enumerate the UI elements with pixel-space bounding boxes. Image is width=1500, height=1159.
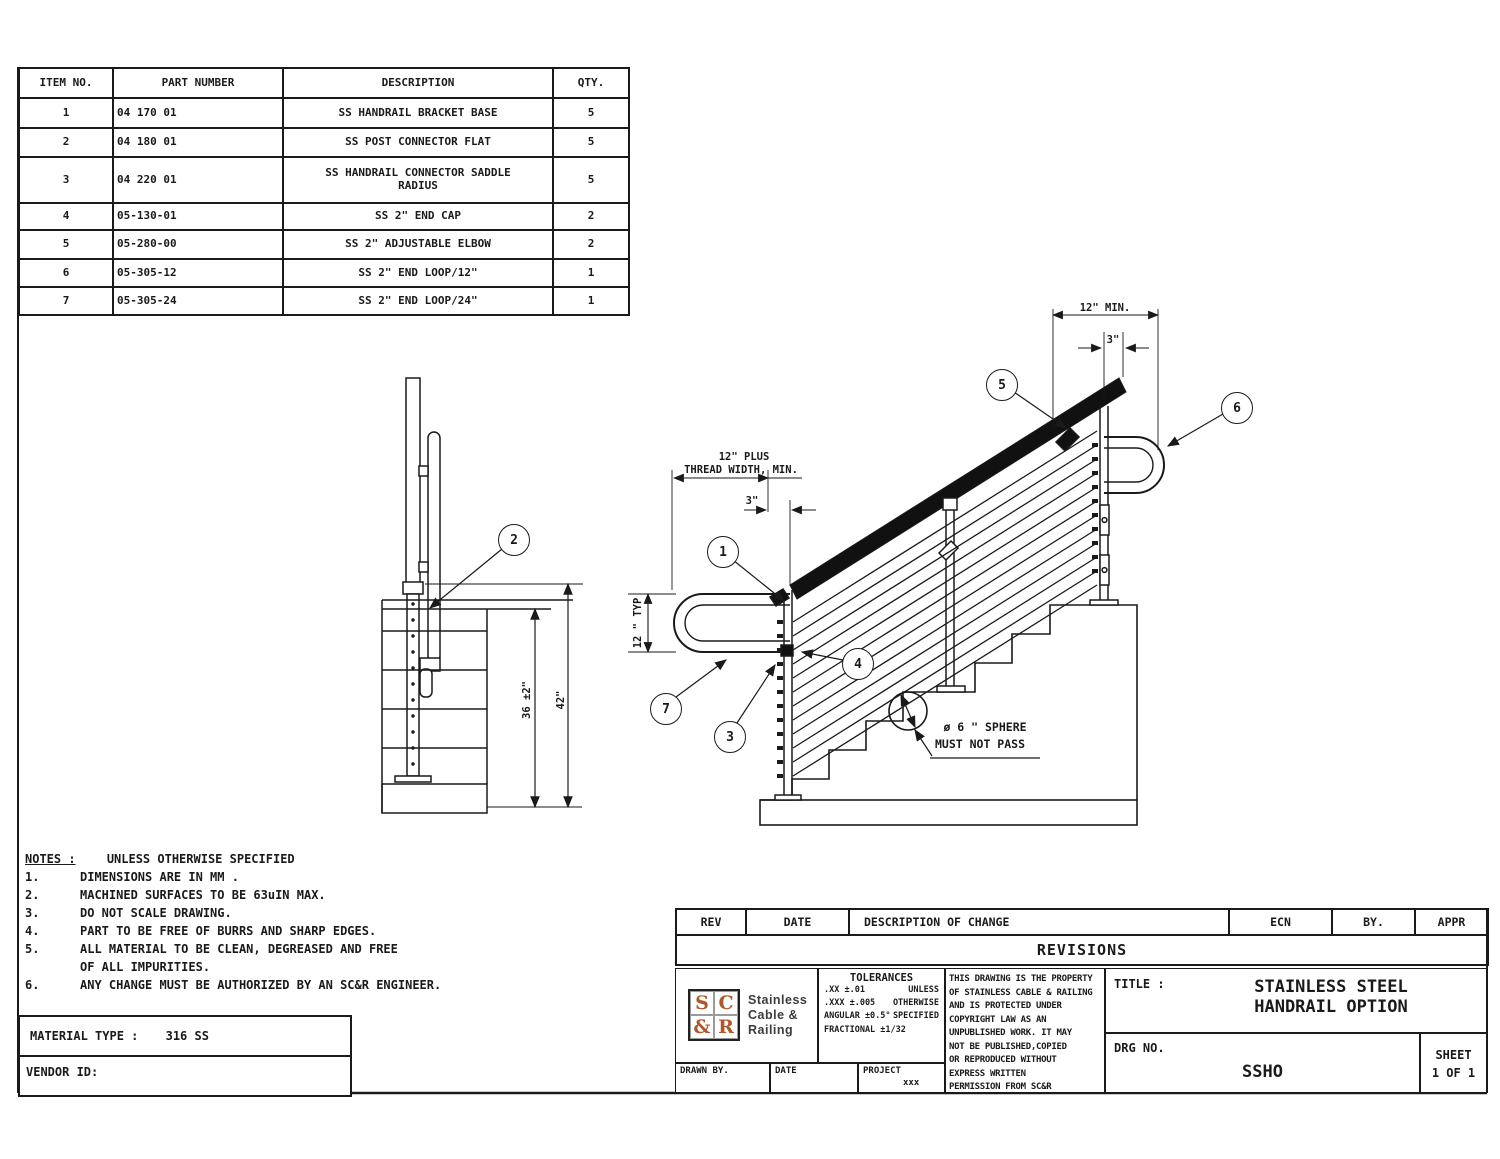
by-col: BY.	[1332, 909, 1415, 935]
cell-desc: SS POST CONNECTOR FLAT	[283, 128, 553, 157]
cell-item: 1	[19, 98, 113, 128]
tolerances-cell: TOLERANCES .XX ±.01UNLESS .XXX ±.005OTHE…	[818, 968, 945, 1063]
balloon-5: 5	[986, 369, 1018, 401]
vendor-id-box: VENDOR ID:	[18, 1055, 352, 1097]
dim-42: 42"	[555, 691, 567, 710]
tolerance-value: .XXX ±.005	[824, 997, 875, 1010]
cell-qty: 5	[553, 157, 629, 203]
description-col: DESCRIPTION OF CHANGE	[849, 909, 1229, 935]
sheet-value: 1 OF 1	[1421, 1066, 1486, 1080]
tolerance-note: UNLESS	[908, 984, 939, 997]
dim-36: 36 ±2"	[521, 681, 533, 719]
copyright-line: THIS DRAWING IS THE PROPERTY	[949, 973, 1101, 987]
dim-12-min: 12" MIN.	[1080, 302, 1131, 314]
cell-qty: 1	[553, 259, 629, 287]
table-row: 7 05-305-24 SS 2" END LOOP/24" 1	[19, 287, 629, 315]
copyright-line: AND IS PROTECTED UNDER	[949, 1000, 1101, 1014]
copyright-line: COPYRIGHT LAW AS AN	[949, 1014, 1101, 1028]
material-type-value: 316 SS	[146, 1029, 209, 1043]
logo-letter: &	[690, 1015, 714, 1039]
sheet-cell: SHEET 1 OF 1	[1420, 1033, 1487, 1093]
dim-12-plus-line2: THREAD WIDTH, MIN.	[684, 464, 798, 476]
cell-qty: 5	[553, 98, 629, 128]
logo-text: Stainless Cable & Railing	[748, 993, 807, 1037]
table-row: 1 04 170 01 SS HANDRAIL BRACKET BASE 5	[19, 98, 629, 128]
tolerances-title: TOLERANCES	[824, 972, 939, 984]
table-row: 3 04 220 01 SS HANDRAIL CONNECTOR SADDLE…	[19, 157, 629, 203]
balloon-7: 7	[650, 693, 682, 725]
dim-3-top: 3"	[1107, 334, 1120, 346]
rev-col: REV	[676, 909, 746, 935]
sphere-note-line2: MUST NOT PASS	[935, 737, 1025, 751]
balloon-4: 4	[842, 648, 874, 680]
revisions-table: REV DATE DESCRIPTION OF CHANGE ECN BY. A…	[675, 908, 1489, 966]
drg-no-label: DRG NO.	[1114, 1041, 1165, 1055]
drawing-sheet: ITEM NO. PART NUMBER DESCRIPTION QTY. 1 …	[0, 0, 1500, 1159]
cell-desc: SS HANDRAIL CONNECTOR SADDLE RADIUS	[283, 157, 553, 203]
cell-item: 5	[19, 230, 113, 259]
logo-cell: S C & R Stainless Cable & Railing	[675, 968, 818, 1063]
revisions-title-row: REVISIONS	[676, 935, 1488, 965]
copyright-line: PERMISSION FROM SC&R	[949, 1081, 1101, 1095]
title-label: TITLE :	[1114, 977, 1165, 991]
appr-col: APPR	[1415, 909, 1488, 935]
logo-text-line: Railing	[748, 1023, 807, 1038]
cell-part: 05-305-24	[113, 287, 283, 315]
balloon-2: 2	[498, 524, 530, 556]
cell-part: 04 170 01	[113, 98, 283, 128]
vendor-id-label: VENDOR ID:	[26, 1065, 98, 1079]
material-type-label: MATERIAL TYPE :	[30, 1029, 138, 1043]
cell-part: 05-280-00	[113, 230, 283, 259]
logo-letter: C	[714, 991, 738, 1015]
col-header-desc: DESCRIPTION	[283, 68, 553, 98]
dim-3-bottom: 3"	[746, 495, 759, 507]
logo-text-line: Stainless	[748, 993, 807, 1008]
cell-qty: 5	[553, 128, 629, 157]
drawing-title: STAINLESS STEEL HANDRAIL OPTION	[1186, 977, 1476, 1017]
cell-part: 04 180 01	[113, 128, 283, 157]
cell-desc: SS HANDRAIL BRACKET BASE	[283, 98, 553, 128]
col-header-item: ITEM NO.	[19, 68, 113, 98]
table-row: 6 05-305-12 SS 2" END LOOP/12" 1	[19, 259, 629, 287]
material-type-box: MATERIAL TYPE : 316 SS	[18, 1015, 352, 1059]
cell-item: 6	[19, 259, 113, 287]
drg-no-cell: DRG NO. SSHO	[1105, 1033, 1420, 1093]
logo-letter: R	[714, 1015, 738, 1039]
cell-item: 4	[19, 203, 113, 230]
cell-item: 3	[19, 157, 113, 203]
logo-letter: S	[690, 991, 714, 1015]
dim-12-plus-line1: 12" PLUS	[719, 451, 770, 463]
cell-part: 05-305-12	[113, 259, 283, 287]
copyright-line: OR REPRODUCED WITHOUT	[949, 1054, 1101, 1068]
sphere-note-line1: ø 6 " SPHERE	[943, 720, 1026, 734]
balloon-3: 3	[714, 721, 746, 753]
parts-table: ITEM NO. PART NUMBER DESCRIPTION QTY. 1 …	[18, 67, 630, 316]
date-label: DATE	[775, 1066, 797, 1076]
project-label: PROJECT	[863, 1066, 901, 1076]
drg-no-value: SSHO	[1106, 1062, 1419, 1082]
copyright-line: EXPRESS WRITTEN	[949, 1068, 1101, 1082]
cell-desc: SS 2" END CAP	[283, 203, 553, 230]
dim-12-typ: 12 " TYP	[632, 598, 644, 649]
tolerance-value: ANGULAR ±0.5°	[824, 1010, 891, 1023]
cell-part: 04 220 01	[113, 157, 283, 203]
tolerance-note: SPECIFIED	[893, 1010, 939, 1023]
project-value: xxx	[903, 1078, 919, 1088]
sheet-label: SHEET	[1421, 1048, 1486, 1062]
logo-text-line: Cable &	[748, 1008, 807, 1023]
cell-qty: 2	[553, 203, 629, 230]
col-header-qty: QTY.	[553, 68, 629, 98]
copyright-line: OF STAINLESS CABLE & RAILING	[949, 987, 1101, 1001]
cell-part: 05-130-01	[113, 203, 283, 230]
copyright-line: UNPUBLISHED WORK. IT MAY	[949, 1027, 1101, 1041]
parts-table-header: ITEM NO. PART NUMBER DESCRIPTION QTY.	[19, 68, 629, 98]
copyright-cell: THIS DRAWING IS THE PROPERTY OF STAINLES…	[945, 968, 1105, 1093]
cell-item: 2	[19, 128, 113, 157]
drawn-by-cell: DRAWN BY.	[675, 1063, 770, 1093]
tolerance-value: FRACTIONAL ±1/32	[824, 1024, 906, 1037]
revisions-title: REVISIONS	[676, 935, 1488, 965]
cell-desc: SS 2" END LOOP/12"	[283, 259, 553, 287]
date-cell: DATE	[770, 1063, 858, 1093]
tolerance-note: OTHERWISE	[893, 997, 939, 1010]
table-row: 4 05-130-01 SS 2" END CAP 2	[19, 203, 629, 230]
cell-desc: SS 2" ADJUSTABLE ELBOW	[283, 230, 553, 259]
cell-item: 7	[19, 287, 113, 315]
balloon-6: 6	[1221, 392, 1253, 424]
balloon-1: 1	[707, 536, 739, 568]
title-line-1: STAINLESS STEEL	[1186, 977, 1476, 997]
table-row: 5 05-280-00 SS 2" ADJUSTABLE ELBOW 2	[19, 230, 629, 259]
date-col: DATE	[746, 909, 849, 935]
revisions-header-row: REV DATE DESCRIPTION OF CHANGE ECN BY. A…	[676, 909, 1488, 935]
cell-qty: 1	[553, 287, 629, 315]
scr-logo-icon: S C & R	[688, 989, 740, 1041]
title-cell: TITLE : STAINLESS STEEL HANDRAIL OPTION	[1105, 968, 1487, 1033]
cell-qty: 2	[553, 230, 629, 259]
col-header-part: PART NUMBER	[113, 68, 283, 98]
tolerance-value: .XX ±.01	[824, 984, 865, 997]
project-cell: PROJECT xxx	[858, 1063, 945, 1093]
drawn-by-label: DRAWN BY.	[680, 1066, 729, 1076]
title-line-2: HANDRAIL OPTION	[1186, 997, 1476, 1017]
ecn-col: ECN	[1229, 909, 1332, 935]
table-row: 2 04 180 01 SS POST CONNECTOR FLAT 5	[19, 128, 629, 157]
copyright-line: NOT BE PUBLISHED,COPIED	[949, 1041, 1101, 1055]
cell-desc: SS 2" END LOOP/24"	[283, 287, 553, 315]
